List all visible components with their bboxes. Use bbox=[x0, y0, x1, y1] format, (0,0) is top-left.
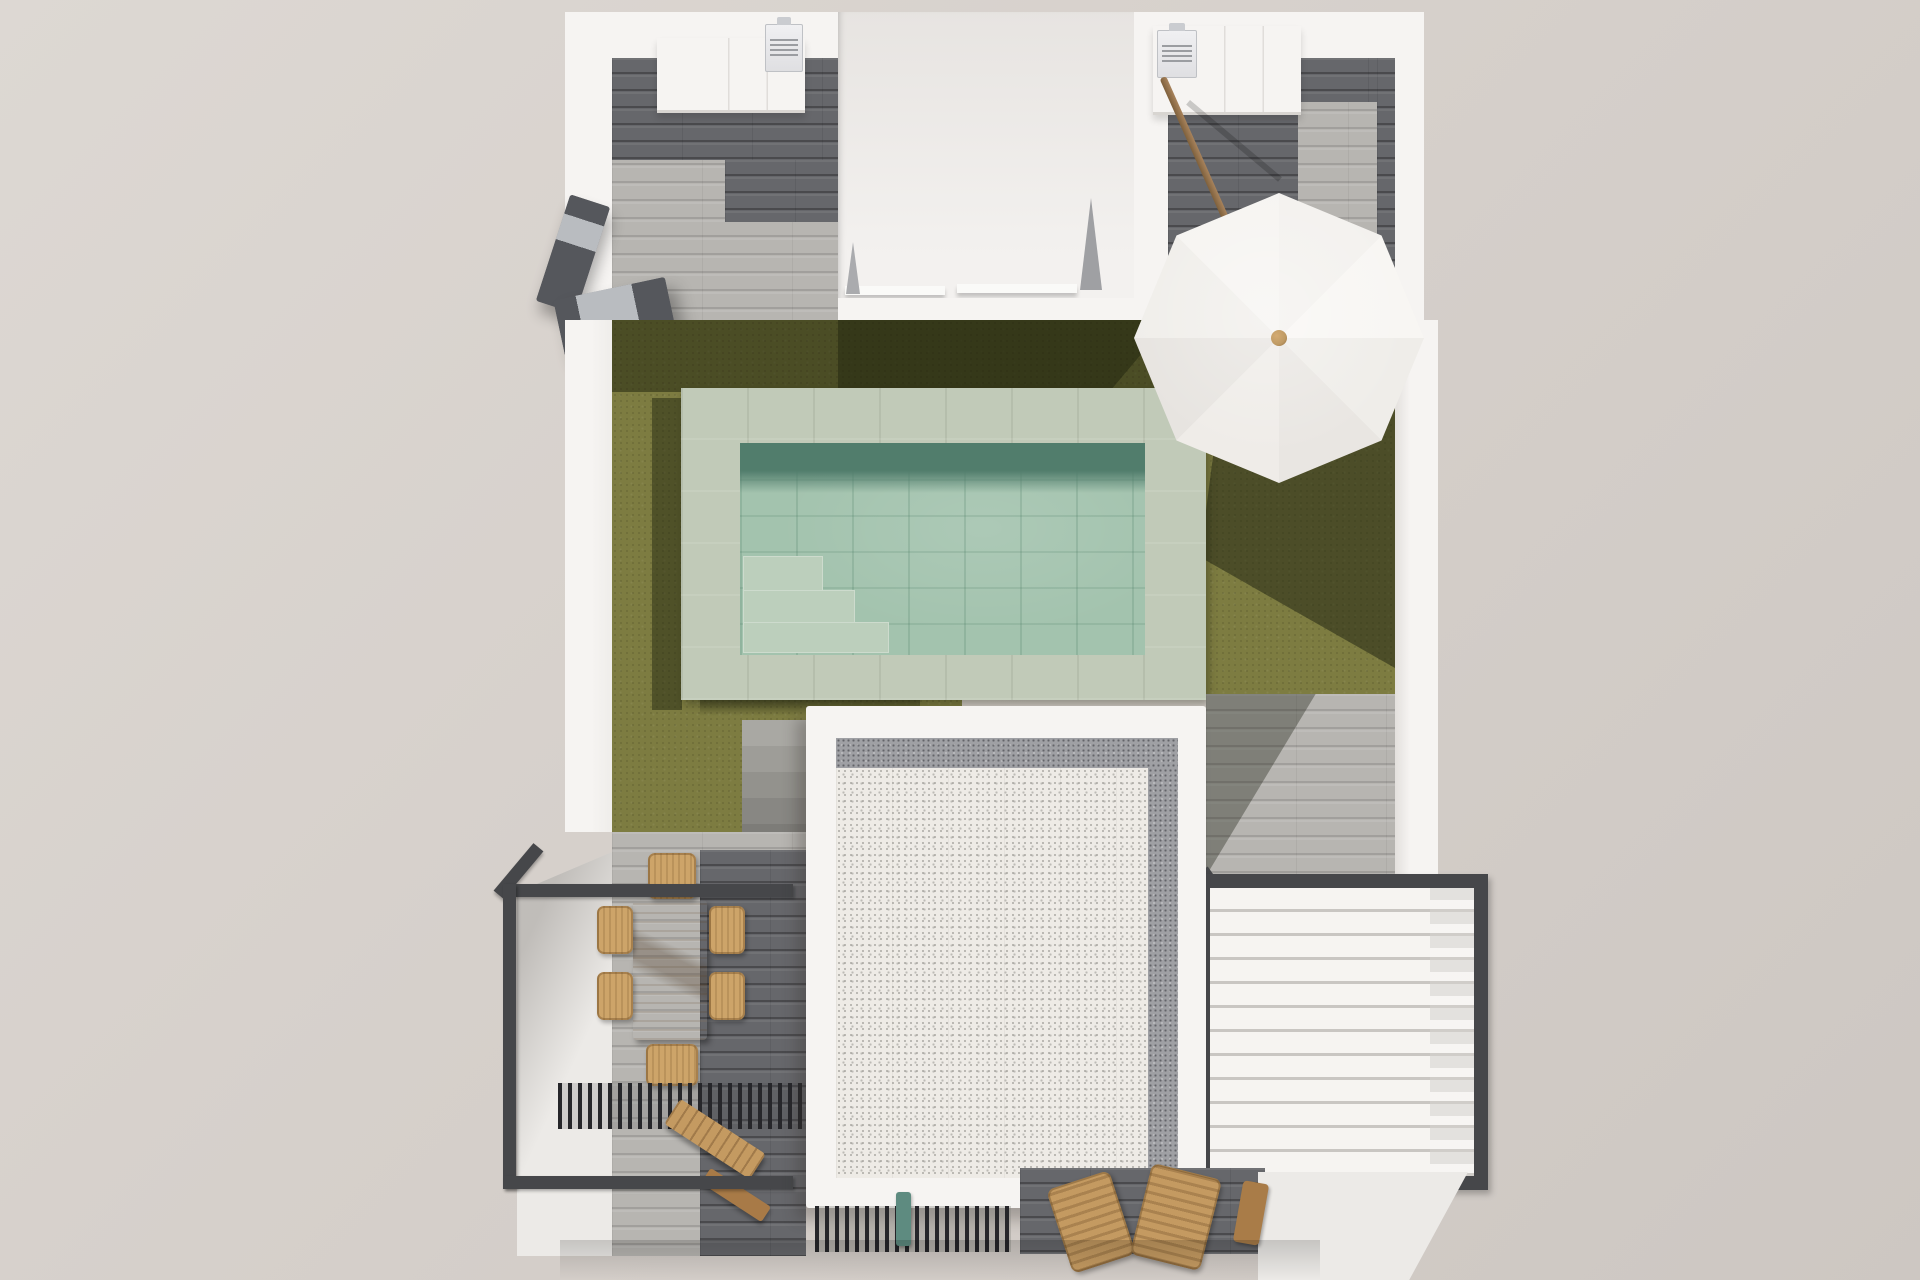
railing-top-bar bbox=[503, 884, 793, 897]
pool-deck-shadow-left bbox=[652, 398, 682, 710]
upper-left-patio-shaded-step bbox=[725, 160, 838, 222]
gravel-roof-surface bbox=[836, 738, 1178, 1178]
teal-planter bbox=[896, 1192, 911, 1246]
dining-chair-left-1 bbox=[597, 906, 633, 954]
air-conditioner-right bbox=[1157, 30, 1197, 78]
right-boundary-wall bbox=[1395, 320, 1438, 880]
dining-chair-right-1 bbox=[709, 906, 745, 954]
dining-chair-left-2 bbox=[597, 972, 633, 1020]
dining-chair-foot bbox=[646, 1044, 698, 1086]
ground-shadow bbox=[560, 1240, 1320, 1280]
dining-chair-right-2 bbox=[709, 972, 745, 1020]
aerial-villa-render bbox=[0, 0, 1920, 1280]
ac-fan-icon bbox=[1169, 23, 1184, 31]
pool-step-3 bbox=[743, 622, 889, 653]
ac-vent-grid bbox=[770, 39, 798, 59]
parasol-center-knob bbox=[1271, 330, 1287, 346]
pergola-frame bbox=[1196, 874, 1488, 1190]
window-ledge-right bbox=[957, 284, 1077, 293]
dining-table bbox=[633, 900, 707, 1040]
ac-fan-icon bbox=[777, 17, 791, 25]
window-ledge-left bbox=[845, 286, 945, 295]
ac-vent-grid bbox=[1162, 45, 1192, 65]
air-conditioner-left bbox=[765, 24, 803, 72]
railing-left-bar bbox=[503, 884, 516, 1189]
railing-bottom-bar bbox=[503, 1176, 793, 1189]
gravel-grey-band-top bbox=[836, 738, 1178, 768]
gravel-grey-band-right bbox=[1148, 768, 1178, 1178]
pool-wall-shadow bbox=[740, 443, 1145, 493]
left-boundary-wall bbox=[565, 320, 612, 832]
